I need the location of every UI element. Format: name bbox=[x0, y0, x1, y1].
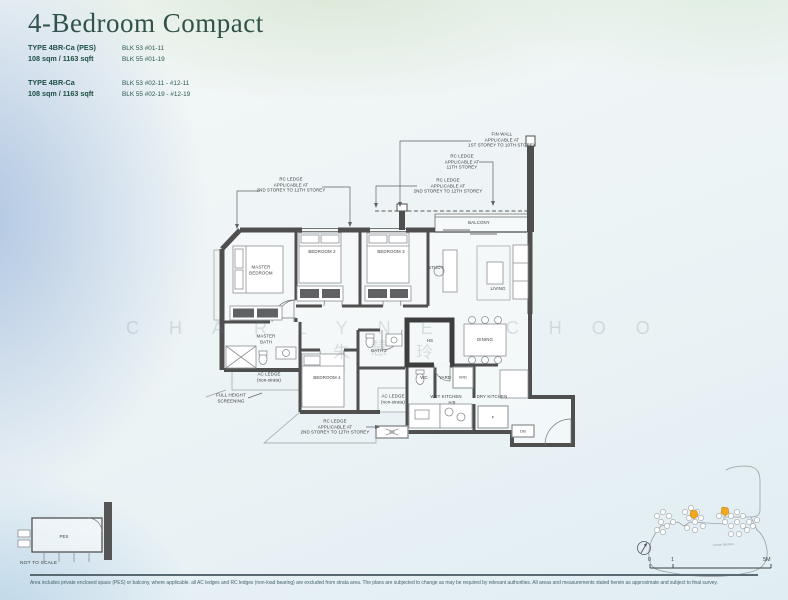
annotation-rc-ledge-right: RC LEDGE APPLICABLE AT 2ND STOREY TO 12T… bbox=[414, 177, 483, 194]
label-master-bath: MASTER BATH bbox=[257, 333, 276, 344]
label-wd: W/D bbox=[459, 374, 467, 379]
annotation-rc-ledge-left: RC LEDGE APPLICABLE AT 2ND STOREY TO 12T… bbox=[257, 176, 326, 193]
not-to-scale-note: NOT TO SCALE bbox=[20, 561, 57, 566]
label-hs: HS bbox=[427, 338, 433, 344]
footer-divider bbox=[30, 574, 758, 576]
label-balcony: BALCONY bbox=[468, 220, 490, 226]
label-bedroom-4: BEDROOM 4 bbox=[313, 375, 340, 381]
vanity-bath2 bbox=[386, 334, 402, 346]
highlighted-buildings bbox=[690, 507, 729, 519]
sink bbox=[415, 410, 429, 419]
annotation-full-height-screening: FULL HEIGHT SCREENING bbox=[216, 392, 245, 403]
site-buildings bbox=[654, 505, 759, 536]
label-db: DB bbox=[520, 428, 526, 433]
north-arrow-icon bbox=[638, 542, 651, 555]
hob-counter bbox=[440, 404, 472, 428]
pes-wall-column bbox=[104, 502, 112, 560]
scale-label-1: 1 bbox=[671, 557, 674, 563]
label-wet-kitchen: WET KITCHEN bbox=[430, 394, 461, 400]
road-label: Lentor Gardens bbox=[713, 542, 735, 547]
study-desk bbox=[443, 250, 457, 292]
label-dining: DINING bbox=[477, 337, 493, 343]
label-wc: WC bbox=[420, 375, 428, 381]
label-yard: YARD bbox=[439, 375, 451, 381]
annotation-rc-ledge-bottom: RC LEDGE APPLICABLE AT 2ND STOREY TO 12T… bbox=[301, 418, 370, 435]
label-study: STUDY bbox=[428, 265, 443, 271]
scale-label-0: 0 bbox=[648, 557, 651, 563]
label-hob: H/B bbox=[449, 399, 456, 404]
annotation-fin-wall: FIN WALL APPLICABLE AT 1ST STOREY TO 10T… bbox=[468, 131, 536, 148]
annotation-rc-ledge-11th: RC LEDGE APPLICABLE AT 11TH STOREY bbox=[445, 153, 479, 170]
vanity-master bbox=[276, 347, 296, 359]
label-living: LIVING bbox=[491, 286, 506, 292]
annotation-ac-ledge-2: AC LEDGE (non-strata) bbox=[381, 393, 405, 404]
label-bedroom-2: BEDROOM 2 bbox=[308, 249, 335, 255]
sofa bbox=[513, 245, 528, 299]
label-dry-kitchen: DRY KITCHEN bbox=[477, 394, 508, 400]
disclaimer-text: Area includes private enclosed space (PE… bbox=[30, 580, 770, 586]
site-map: Lentor Gardens 0 1 5M bbox=[633, 460, 785, 586]
floorplan-page: 4-Bedroom Compact TYPE 4BR-Ca (PES) 108 … bbox=[0, 0, 788, 600]
label-fridge: F bbox=[492, 414, 495, 419]
scale-bar bbox=[650, 564, 771, 568]
label-bedroom-3: BEDROOM 3 bbox=[377, 249, 404, 255]
scale-label-5m: 5M bbox=[763, 557, 771, 563]
vent-box bbox=[376, 426, 408, 438]
annotation-ac-ledge-1: AC LEDGE (non-strata) bbox=[257, 371, 281, 382]
label-bath-2: BATH 2 bbox=[371, 348, 387, 354]
label-master-bedroom: MASTER BEDROOM bbox=[249, 264, 272, 275]
coffee-table bbox=[487, 262, 503, 284]
label-pes: PES bbox=[59, 534, 68, 540]
